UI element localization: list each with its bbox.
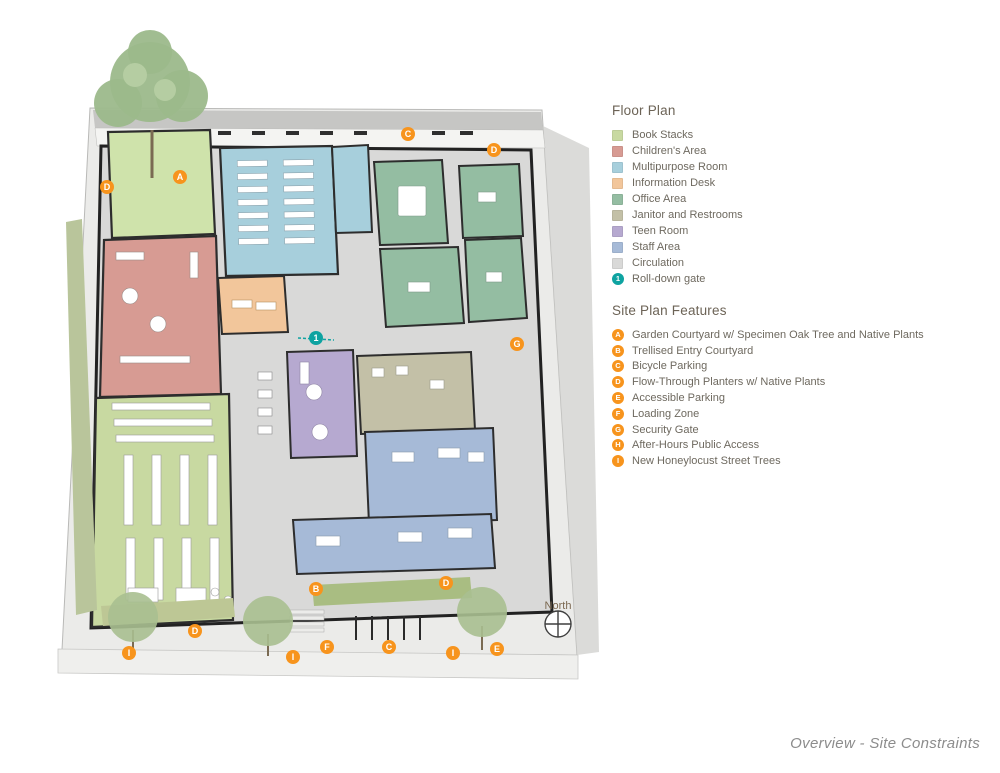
legend-item-childrens-area: Children's Area [612, 143, 997, 159]
legend-label: Staff Area [632, 241, 680, 253]
marker-D-planter-bottom-mid: D [439, 576, 453, 590]
legend-panel: Floor Plan Book Stacks Children's Area M… [612, 103, 997, 469]
swatch-office-area [612, 194, 623, 205]
swatch-teen-room [612, 226, 623, 237]
feature-item-I: I New Honeylocust Street Trees [612, 453, 997, 469]
room-multipurpose-annex [332, 145, 372, 233]
legend-item-multipurpose-room: Multipurpose Room [612, 159, 997, 175]
swatch-multipurpose-room [612, 162, 623, 173]
marker-D-planter-bottom-left: D [188, 624, 202, 638]
legend-label: Office Area [632, 193, 686, 205]
feature-D-icon: D [612, 376, 624, 388]
feature-C-icon: C [612, 360, 624, 372]
feature-item-B: B Trellised Entry Courtyard [612, 343, 997, 359]
legend-label: Roll-down gate [632, 273, 705, 285]
legend-item-janitor-restrooms: Janitor and Restrooms [612, 207, 997, 223]
room-teen [287, 350, 357, 458]
feature-label: New Honeylocust Street Trees [632, 455, 781, 467]
room-information-desk [218, 276, 288, 334]
feature-item-H: H After-Hours Public Access [612, 438, 997, 454]
marker-C-bicycle-parking-bottom: C [382, 640, 396, 654]
feature-label: Security Gate [632, 424, 699, 436]
legend-item-book-stacks: Book Stacks [612, 127, 997, 143]
feature-item-E: E Accessible Parking [612, 390, 997, 406]
marker-D-planter-top-right: D [487, 143, 501, 157]
site-plan-page: North A B C C D D D D E F G I I I 1 Floo… [0, 0, 1000, 773]
marker-F-loading-zone: F [320, 640, 334, 654]
swatch-childrens-area [612, 146, 623, 157]
swatch-information-desk [612, 178, 623, 189]
feature-label: Garden Courtyard w/ Specimen Oak Tree an… [632, 329, 924, 341]
marker-B-entry-courtyard: B [309, 582, 323, 596]
legend-item-information-desk: Information Desk [612, 175, 997, 191]
marker-I-street-tree-2: I [286, 650, 300, 664]
swatch-staff-area [612, 242, 623, 253]
feature-label: After-Hours Public Access [632, 439, 759, 451]
swatch-circulation [612, 258, 623, 269]
feature-B-icon: B [612, 345, 624, 357]
swatch-janitor-restrooms [612, 210, 623, 221]
marker-1-roll-down-gate: 1 [309, 331, 323, 345]
legend-item-staff-area: Staff Area [612, 239, 997, 255]
legend-label: Multipurpose Room [632, 161, 727, 173]
room-garden-courtyard [108, 130, 215, 238]
marker-A-garden-courtyard: A [173, 170, 187, 184]
swatch-book-stacks [612, 130, 623, 141]
feature-item-D: D Flow-Through Planters w/ Native Plants [612, 374, 997, 390]
feature-G-icon: G [612, 424, 624, 436]
feature-H-icon: H [612, 439, 624, 451]
marker-E-accessible-parking: E [490, 642, 504, 656]
north-label: North [545, 600, 572, 612]
marker-I-street-tree-1: I [122, 646, 136, 660]
feature-item-C: C Bicycle Parking [612, 359, 997, 375]
room-janitor-restrooms [357, 352, 475, 434]
legend-item-circulation: Circulation [612, 255, 997, 271]
legend-item-teen-room: Teen Room [612, 223, 997, 239]
room-staff-upper [365, 428, 497, 524]
legend-label: Children's Area [632, 145, 706, 157]
legend-label: Janitor and Restrooms [632, 209, 743, 221]
legend-label: Teen Room [632, 225, 688, 237]
legend-label: Circulation [632, 257, 684, 269]
legend-label: Information Desk [632, 177, 715, 189]
feature-E-icon: E [612, 392, 624, 404]
feature-label: Loading Zone [632, 408, 699, 420]
site-features-legend-title: Site Plan Features [612, 303, 997, 318]
marker-D-planter-left: D [100, 180, 114, 194]
feature-label: Trellised Entry Courtyard [632, 345, 753, 357]
marker-C-bicycle-parking-top: C [401, 127, 415, 141]
legend-item-office-area: Office Area [612, 191, 997, 207]
site-features-legend: Site Plan Features A Garden Courtyard w/… [612, 303, 997, 469]
sheet-title: Overview - Site Constraints [0, 735, 980, 752]
roll-down-gate-icon: 1 [612, 273, 624, 285]
feature-label: Flow-Through Planters w/ Native Plants [632, 376, 825, 388]
marker-G-security-gate: G [510, 337, 524, 351]
floor-plan-legend-title: Floor Plan [612, 103, 997, 118]
legend-item-roll-down-gate: 1 Roll-down gate [612, 271, 997, 287]
feature-item-G: G Security Gate [612, 422, 997, 438]
feature-label: Accessible Parking [632, 392, 725, 404]
feature-F-icon: F [612, 408, 624, 420]
feature-I-icon: I [612, 455, 624, 467]
feature-label: Bicycle Parking [632, 360, 707, 372]
floor-plan-legend: Floor Plan Book Stacks Children's Area M… [612, 103, 997, 287]
north-arrow-icon [545, 611, 571, 637]
legend-label: Book Stacks [632, 129, 693, 141]
marker-I-street-tree-3: I [446, 646, 460, 660]
feature-item-F: F Loading Zone [612, 406, 997, 422]
feature-item-A: A Garden Courtyard w/ Specimen Oak Tree … [612, 327, 997, 343]
feature-A-icon: A [612, 329, 624, 341]
